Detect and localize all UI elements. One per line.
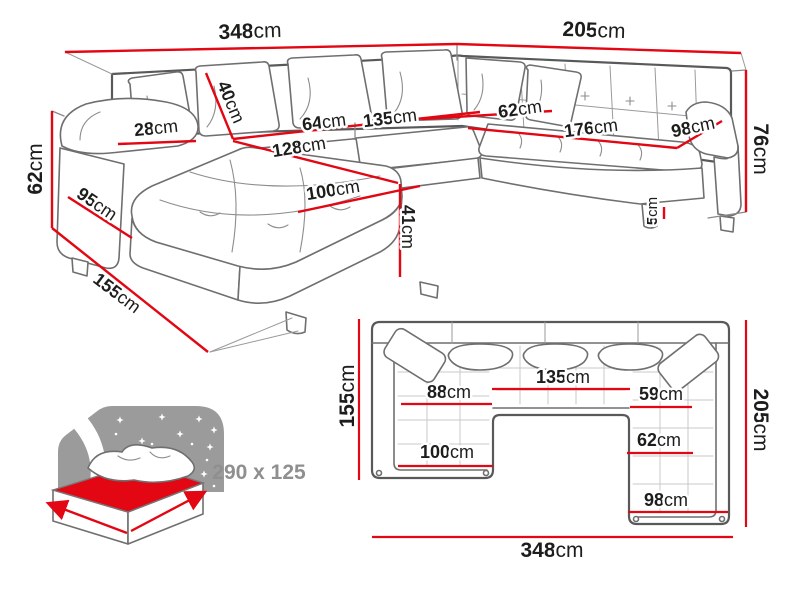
dim-line-right-length <box>457 44 741 53</box>
sofa-leg <box>72 258 88 276</box>
sofa-leg <box>420 282 438 298</box>
sleeping-area-dimensions: 290 x 125 <box>212 461 306 484</box>
label-back-height: 76cm <box>749 123 772 174</box>
label-left-height: 62cm <box>24 143 47 194</box>
sofa-leg <box>720 216 734 232</box>
plan-label-total-width: 348cm <box>520 539 583 562</box>
plan-label-right-seat: 62cm <box>637 430 681 450</box>
label-seat-height: 41cm <box>398 205 418 249</box>
plan-label-depth-right: 205cm <box>749 388 772 451</box>
plan-label-seat-left: 88cm <box>427 382 471 402</box>
plan-label-chaise-width: 100cm <box>420 442 474 462</box>
label-total-width: 348cm <box>218 19 282 44</box>
chaise-longue <box>130 147 438 333</box>
plan-view: 155cm 205cm 348cm 135cm 88cm 59cm 100cm … <box>336 319 772 562</box>
label-seat-64: 64cm <box>301 109 347 134</box>
sleeping-function-icon <box>50 406 224 544</box>
perspective-view: 348cm 205cm 76cm 62cm 28cm 95cm 155cm 40… <box>24 18 772 352</box>
diagram-canvas: 348cm 205cm 76cm 62cm 28cm 95cm 155cm 40… <box>0 0 800 600</box>
sofa-dimension-diagram: 348cm 205cm 76cm 62cm 28cm 95cm 155cm 40… <box>0 0 800 600</box>
plan-label-seat-middle: 135cm <box>536 367 590 387</box>
sleeping-area-info: 290 x 125 <box>50 406 306 544</box>
plan-label-right-total: 98cm <box>644 490 688 510</box>
label-right-length: 205cm <box>562 18 626 43</box>
sofa-leg <box>286 312 306 334</box>
label-leg-height: 5cm <box>644 197 661 225</box>
plan-label-seat-right: 59cm <box>639 384 683 404</box>
label-chaise-depth: 155cm <box>89 269 144 317</box>
plan-label-depth-left: 155cm <box>336 364 359 427</box>
